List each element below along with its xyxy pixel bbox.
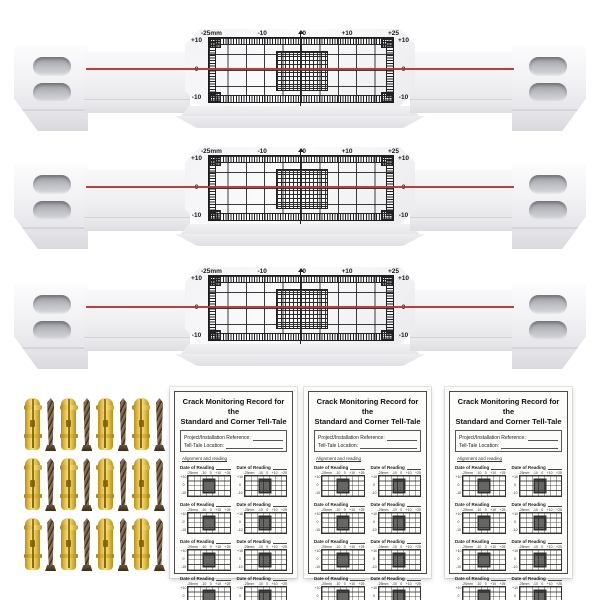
entry-label: Date of Reading — [237, 539, 271, 544]
fastener-row — [25, 398, 165, 452]
field-label: Tell-Tale Location: — [318, 443, 358, 449]
scale-label: -10 — [315, 528, 320, 532]
field-label: Project/Installation Reference: — [184, 435, 251, 441]
mini-gauge-row: +10 0 -10 — [371, 475, 422, 497]
scale-label: 0 — [458, 520, 460, 524]
measurement-grid — [208, 155, 394, 221]
crack-monitoring-gauge: -25mm -10 0 +10 +25 +10 0 -10 +10 0 -10 — [0, 247, 600, 379]
mounting-bracket-left — [14, 283, 88, 369]
field-project-reference: Project/Installation Reference: — [184, 433, 283, 441]
date-of-reading-row: Date of Reading — [314, 500, 365, 507]
scale-label: +25 — [388, 268, 399, 275]
screw-slot — [529, 321, 567, 340]
bracket-ridge — [14, 109, 88, 111]
wall-plug-anchor — [134, 518, 149, 570]
tick-ruler-bottom — [215, 213, 387, 220]
screw-slot — [529, 295, 567, 314]
blank-line — [350, 539, 364, 544]
corner-hatch — [209, 330, 221, 340]
date-of-reading-row: Date of Reading — [371, 537, 422, 544]
reading-entry: Date of Reading -25mm -10 0 +10 +25 +10 … — [371, 500, 422, 534]
reading-entry: Date of Reading -25mm -10 0 +10 +25 +10 … — [371, 463, 422, 497]
date-of-reading-row: Date of Reading — [512, 463, 563, 470]
measurement-grid — [208, 275, 394, 341]
scale-label: -10 — [456, 528, 461, 532]
mini-gauge-row: +10 0 -10 — [237, 549, 288, 571]
entry-label: Date of Reading — [314, 539, 348, 544]
scale-label: -10 — [371, 491, 376, 495]
blank-line — [407, 465, 421, 470]
reading-entries-grid: Date of Reading -25mm -10 0 +10 +25 +10 … — [314, 463, 421, 600]
tick-ruler-left — [209, 42, 216, 98]
mini-gauge-diagram — [244, 512, 288, 534]
tick-ruler-top — [215, 276, 387, 283]
date-of-reading-row: Date of Reading — [455, 463, 506, 470]
mini-side-labels: +10 0 -10 — [512, 586, 519, 600]
tick-ruler-top — [215, 38, 387, 45]
date-of-reading-row: Date of Reading — [180, 500, 231, 507]
mini-gauge-row: +10 0 -10 — [455, 586, 506, 600]
field-label: Project/Installation Reference: — [318, 435, 385, 441]
scale-label: -10 — [192, 332, 201, 339]
reading-entry: Date of Reading -25mm -10 0 +10 +25 +10 … — [180, 537, 231, 571]
scale-label: -10 — [399, 332, 408, 339]
wall-plug-anchor — [61, 518, 76, 570]
mini-gauge-row: +10 0 -10 — [180, 586, 231, 600]
mini-gauge-diagram — [378, 549, 422, 571]
corner-hatch — [381, 92, 393, 102]
scale-label: +10 — [456, 512, 462, 516]
mini-gauge-diagram — [321, 549, 365, 571]
reading-entry: Date of Reading -25mm -10 0 +10 +25 +10 … — [512, 537, 563, 571]
entry-label: Date of Reading — [237, 465, 271, 470]
screw-slot — [33, 83, 71, 102]
scale-label: +10 — [315, 549, 321, 553]
scale-label: 0 — [514, 557, 516, 561]
mini-side-labels: +10 0 -10 — [237, 512, 244, 532]
reading-entry: Date of Reading -25mm -10 0 +10 +25 +10 … — [314, 537, 365, 571]
scale-label: +10 — [456, 586, 462, 590]
scale-label: -10 — [257, 148, 266, 155]
screw-slot — [529, 175, 567, 194]
center-axis-line — [300, 150, 301, 226]
blank-line — [501, 443, 558, 449]
scale-labels-top: -25mm -10 0 +10 +25 — [201, 148, 399, 155]
mini-gauge-row: +10 0 -10 — [371, 586, 422, 600]
corner-hatch — [381, 156, 393, 166]
plug-hole — [30, 480, 35, 487]
scale-label: +10 — [512, 475, 518, 479]
blank-line — [548, 465, 562, 470]
card-title-line1: Crack Monitoring Record for the — [317, 397, 419, 416]
blank-line — [216, 465, 230, 470]
corner-hatch — [381, 210, 393, 220]
mini-side-labels: +10 0 -10 — [314, 549, 321, 569]
date-of-reading-row: Date of Reading — [314, 463, 365, 470]
mounting-bracket-left — [14, 163, 88, 249]
date-of-reading-row: Date of Reading — [371, 500, 422, 507]
mounting-bracket-right — [512, 163, 586, 249]
mini-gauge-diagram — [462, 475, 506, 497]
scale-label: 0 — [514, 483, 516, 487]
screw-slot — [529, 201, 567, 220]
blank-line — [273, 502, 287, 507]
scale-label: +10 — [315, 475, 321, 479]
card-title: Crack Monitoring Record for the Standard… — [180, 397, 287, 426]
scale-label: -10 — [237, 491, 242, 495]
center-axis-line — [300, 270, 301, 346]
field-project-reference: Project/Installation Reference: — [459, 433, 558, 441]
scale-label: +10 — [191, 37, 202, 44]
scale-label: +10 — [315, 512, 321, 516]
reading-entry: Date of Reading -25mm -10 0 +10 +25 +10 … — [237, 537, 288, 571]
card-title-line2: Standard and Corner Tell-Tale — [315, 417, 421, 426]
scale-label: -10 — [192, 212, 201, 219]
scale-labels-top: -25mm -10 0 +10 +25 — [201, 268, 399, 275]
scale-label: -10 — [456, 491, 461, 495]
scale-label: -10 — [192, 94, 201, 101]
zero-reference-line — [86, 186, 514, 188]
scale-label: 0 — [239, 594, 241, 598]
plug-wing — [96, 554, 114, 558]
entry-label: Date of Reading — [512, 576, 546, 581]
screw — [118, 458, 129, 511]
mini-side-labels: +10 0 -10 — [455, 475, 462, 495]
reading-entry: Date of Reading -25mm -10 0 +10 +25 +10 … — [237, 574, 288, 600]
field-tell-tale-location: Tell-Tale Location: — [318, 441, 417, 449]
entry-label: Date of Reading — [371, 502, 405, 507]
entry-label: Date of Reading — [371, 576, 405, 581]
scale-label: +10 — [456, 549, 462, 553]
mini-side-labels: +10 0 -10 — [237, 549, 244, 569]
entry-label: Date of Reading — [512, 465, 546, 470]
blank-line — [548, 576, 562, 581]
scale-label: 0 — [373, 557, 375, 561]
mini-side-labels: +10 0 -10 — [371, 475, 378, 495]
reading-entry: Date of Reading -25mm -10 0 +10 +25 +10 … — [512, 574, 563, 600]
card-fields-box: Project/Installation Reference: Tell-Tal… — [314, 430, 421, 452]
blank-line — [216, 502, 230, 507]
mini-gauge-diagram — [378, 586, 422, 600]
mini-gauge-diagram — [187, 549, 231, 571]
scale-label: +10 — [371, 549, 377, 553]
entry-label: Date of Reading — [180, 502, 214, 507]
field-label: Tell-Tale Location: — [184, 443, 224, 449]
tick-ruler-left — [209, 160, 216, 216]
center-hatch-grid — [276, 51, 328, 91]
mini-side-labels: +10 0 -10 — [371, 549, 378, 569]
zero-reference-line — [86, 68, 514, 70]
scale-label: -10 — [181, 528, 186, 532]
mini-gauge-diagram — [187, 475, 231, 497]
screw — [45, 398, 56, 451]
mini-side-labels: +10 0 -10 — [180, 586, 187, 600]
scale-label: +10 — [456, 475, 462, 479]
plug-hole — [66, 420, 71, 427]
entry-label: Date of Reading — [314, 465, 348, 470]
wall-plug-anchor — [98, 398, 113, 450]
bracket-ridge — [14, 347, 88, 349]
scale-label: 0 — [302, 148, 306, 155]
blank-line — [491, 465, 505, 470]
date-of-reading-row: Date of Reading — [180, 537, 231, 544]
plate-base-layer — [181, 106, 419, 116]
blank-line — [407, 539, 421, 544]
reading-entry: Date of Reading -25mm -10 0 +10 +25 +10 … — [180, 500, 231, 534]
corner-hatch — [209, 210, 221, 220]
fastener-row — [25, 458, 165, 512]
mini-gauge-row: +10 0 -10 — [314, 549, 365, 571]
screw — [154, 518, 165, 571]
field-label: Project/Installation Reference: — [459, 435, 526, 441]
mini-side-labels: +10 0 -10 — [314, 512, 321, 532]
screw — [81, 398, 92, 451]
entry-label: Date of Reading — [512, 502, 546, 507]
field-tell-tale-location: Tell-Tale Location: — [184, 441, 283, 449]
plate-base-layer — [181, 344, 419, 354]
scale-label: 0 — [458, 483, 460, 487]
blank-line — [273, 539, 287, 544]
scale-label: -10 — [512, 528, 517, 532]
scale-label: -25mm — [201, 148, 222, 155]
card-note: Alignment and reading — [457, 456, 562, 461]
wall-plug-anchor — [134, 398, 149, 450]
card-fields-box: Project/Installation Reference: Tell-Tal… — [180, 430, 287, 452]
date-of-reading-row: Date of Reading — [512, 500, 563, 507]
reading-entry: Date of Reading -25mm -10 0 +10 +25 +10 … — [314, 574, 365, 600]
entry-label: Date of Reading — [180, 465, 214, 470]
mini-side-labels: +10 0 -10 — [371, 512, 378, 532]
reading-entries-grid: Date of Reading -25mm -10 0 +10 +25 +10 … — [455, 463, 562, 600]
entry-label: Date of Reading — [455, 465, 489, 470]
mini-side-labels: +10 0 -10 — [455, 549, 462, 569]
record-card: Crack Monitoring Record for the Standard… — [304, 387, 431, 578]
scale-label: +10 — [512, 549, 518, 553]
gauge-arm-left — [84, 170, 190, 217]
scale-label: -10 — [257, 30, 266, 37]
fasteners-section — [25, 398, 165, 578]
tick-ruler-bottom — [215, 333, 387, 340]
scale-label: 0 — [373, 483, 375, 487]
corner-hatch — [209, 156, 221, 166]
date-of-reading-row: Date of Reading — [237, 574, 288, 581]
mini-gauge-row: +10 0 -10 — [455, 512, 506, 534]
scale-label: 0 — [317, 520, 319, 524]
mini-side-labels: +10 0 -10 — [512, 549, 519, 569]
mini-gauge-diagram — [378, 475, 422, 497]
scale-label: 0 — [514, 520, 516, 524]
mini-gauge-diagram — [187, 512, 231, 534]
scale-label: +10 — [181, 475, 187, 479]
plate-base-layer — [181, 224, 419, 234]
scale-label: +10 — [341, 268, 352, 275]
bracket-ridge — [512, 109, 586, 111]
scale-label: -10 — [512, 565, 517, 569]
record-card: Crack Monitoring Record for the Standard… — [170, 387, 297, 578]
gauge-arm-right — [410, 52, 516, 99]
mini-side-labels: +10 0 -10 — [180, 549, 187, 569]
mini-side-labels: +10 0 -10 — [180, 512, 187, 532]
mini-gauge-diagram — [244, 586, 288, 600]
screw-slot — [529, 57, 567, 76]
mini-gauge-row: +10 0 -10 — [512, 475, 563, 497]
blank-line — [491, 576, 505, 581]
corner-hatch — [381, 38, 393, 48]
corner-hatch — [381, 330, 393, 340]
blank-line — [360, 443, 417, 449]
blank-line — [491, 539, 505, 544]
screw-slot — [33, 201, 71, 220]
plate-base-layer — [175, 354, 425, 366]
mini-gauge-row: +10 0 -10 — [455, 475, 506, 497]
reading-entry: Date of Reading -25mm -10 0 +10 +25 +10 … — [455, 574, 506, 600]
mini-side-labels: +10 0 -10 — [314, 586, 321, 600]
reading-entry: Date of Reading -25mm -10 0 +10 +25 +10 … — [512, 463, 563, 497]
corner-hatch — [209, 276, 221, 286]
crack-monitoring-gauge: -25mm -10 0 +10 +25 +10 0 -10 +10 0 -10 — [0, 127, 600, 259]
screw-slot — [33, 175, 71, 194]
mini-gauge-row: +10 0 -10 — [237, 475, 288, 497]
scale-label: -10 — [456, 565, 461, 569]
screw — [81, 458, 92, 511]
scale-label: +10 — [237, 586, 243, 590]
center-hatch-grid — [276, 169, 328, 209]
plug-wing — [24, 554, 42, 558]
blank-line — [528, 435, 558, 441]
scale-label: 0 — [317, 483, 319, 487]
reading-entry: Date of Reading -25mm -10 0 +10 +25 +10 … — [237, 463, 288, 497]
card-title-line2: Standard and Corner Tell-Tale — [456, 417, 562, 426]
mini-side-labels: +10 0 -10 — [512, 475, 519, 495]
tick-ruler-top — [215, 156, 387, 163]
card-title: Crack Monitoring Record for the Standard… — [455, 397, 562, 426]
card-title-line2: Standard and Corner Tell-Tale — [181, 417, 287, 426]
scale-label: +10 — [512, 586, 518, 590]
blank-line — [548, 539, 562, 544]
date-of-reading-row: Date of Reading — [237, 500, 288, 507]
scale-label: 0 — [373, 594, 375, 598]
blank-line — [407, 502, 421, 507]
blank-line — [350, 502, 364, 507]
scale-label: 0 — [183, 520, 185, 524]
corner-hatch — [209, 38, 221, 48]
scale-label: -10 — [237, 528, 242, 532]
mini-side-labels: +10 0 -10 — [455, 586, 462, 600]
mini-gauge-row: +10 0 -10 — [180, 549, 231, 571]
reading-entry: Date of Reading -25mm -10 0 +10 +25 +10 … — [371, 574, 422, 600]
date-of-reading-row: Date of Reading — [314, 574, 365, 581]
date-of-reading-row: Date of Reading — [237, 463, 288, 470]
gauge-arm-left — [84, 52, 190, 99]
scale-label: -10 — [181, 491, 186, 495]
entry-label: Date of Reading — [180, 539, 214, 544]
reading-entry: Date of Reading -25mm -10 0 +10 +25 +10 … — [180, 574, 231, 600]
date-of-reading-row: Date of Reading — [314, 537, 365, 544]
reading-entry: Date of Reading -25mm -10 0 +10 +25 +10 … — [314, 500, 365, 534]
reading-entry: Date of Reading -25mm -10 0 +10 +25 +10 … — [455, 537, 506, 571]
scale-label: -10 — [315, 491, 320, 495]
date-of-reading-row: Date of Reading — [455, 500, 506, 507]
blank-line — [350, 576, 364, 581]
mini-side-labels: +10 0 -10 — [180, 475, 187, 495]
reading-entry: Date of Reading -25mm -10 0 +10 +25 +10 … — [180, 463, 231, 497]
mini-side-labels: +10 0 -10 — [512, 512, 519, 532]
mini-gauge-diagram — [187, 586, 231, 600]
scale-label: +10 — [191, 275, 202, 282]
mini-gauge-row: +10 0 -10 — [237, 586, 288, 600]
tick-ruler-right — [386, 42, 393, 98]
mini-gauge-row: +10 0 -10 — [512, 549, 563, 571]
scale-label: +10 — [315, 586, 321, 590]
date-of-reading-row: Date of Reading — [512, 574, 563, 581]
scale-label: -25mm — [201, 268, 222, 275]
mini-gauge-row: +10 0 -10 — [237, 512, 288, 534]
scale-label: +10 — [341, 148, 352, 155]
entry-label: Date of Reading — [237, 502, 271, 507]
card-title-line1: Crack Monitoring Record for the — [183, 397, 285, 416]
mounting-bracket-left — [14, 45, 88, 131]
mini-gauge-diagram — [462, 549, 506, 571]
screw — [81, 518, 92, 571]
blank-line — [491, 502, 505, 507]
screw-slot — [33, 295, 71, 314]
field-project-reference: Project/Installation Reference: — [318, 433, 417, 441]
date-of-reading-row: Date of Reading — [180, 574, 231, 581]
scale-label: +10 — [181, 549, 187, 553]
plug-wing — [24, 494, 42, 498]
scale-label: 0 — [183, 594, 185, 598]
scale-label: 0 — [183, 557, 185, 561]
center-axis-line — [300, 32, 301, 108]
mini-gauge-diagram — [244, 549, 288, 571]
scale-label: 0 — [317, 594, 319, 598]
scale-label: -25mm — [201, 30, 222, 37]
wall-plug-anchor — [25, 398, 40, 450]
screw — [45, 518, 56, 571]
mini-gauge-diagram — [462, 586, 506, 600]
product-photo: -25mm -10 0 +10 +25 +10 0 -10 +10 0 -10 — [0, 0, 600, 600]
date-of-reading-row: Date of Reading — [371, 574, 422, 581]
scale-label: 0 — [373, 520, 375, 524]
screw — [118, 398, 129, 451]
plug-wing — [60, 434, 78, 438]
plug-hole — [30, 540, 35, 547]
mini-gauge-row: +10 0 -10 — [314, 512, 365, 534]
scale-label: +10 — [237, 549, 243, 553]
blank-line — [273, 465, 287, 470]
mini-gauge-row: +10 0 -10 — [512, 586, 563, 600]
scale-label: +10 — [398, 275, 409, 282]
scale-label: -10 — [257, 268, 266, 275]
mini-side-labels: +10 0 -10 — [455, 512, 462, 532]
scale-label: +10 — [398, 37, 409, 44]
mini-side-labels: +10 0 -10 — [237, 475, 244, 495]
plate-base-layer — [175, 234, 425, 246]
entry-label: Date of Reading — [455, 539, 489, 544]
mini-gauge-row: +10 0 -10 — [371, 549, 422, 571]
screw — [154, 458, 165, 511]
date-of-reading-row: Date of Reading — [455, 574, 506, 581]
card-frame: Crack Monitoring Record for the Standard… — [308, 391, 427, 574]
reading-entry: Date of Reading -25mm -10 0 +10 +25 +10 … — [455, 463, 506, 497]
mini-gauge-diagram — [378, 512, 422, 534]
tick-ruler-right — [386, 160, 393, 216]
screw-slot — [529, 83, 567, 102]
reading-entries-grid: Date of Reading -25mm -10 0 +10 +25 +10 … — [180, 463, 287, 600]
scale-label: 0 — [239, 520, 241, 524]
zero-reference-line — [86, 306, 514, 308]
record-card: Crack Monitoring Record for the Standard… — [445, 387, 572, 578]
